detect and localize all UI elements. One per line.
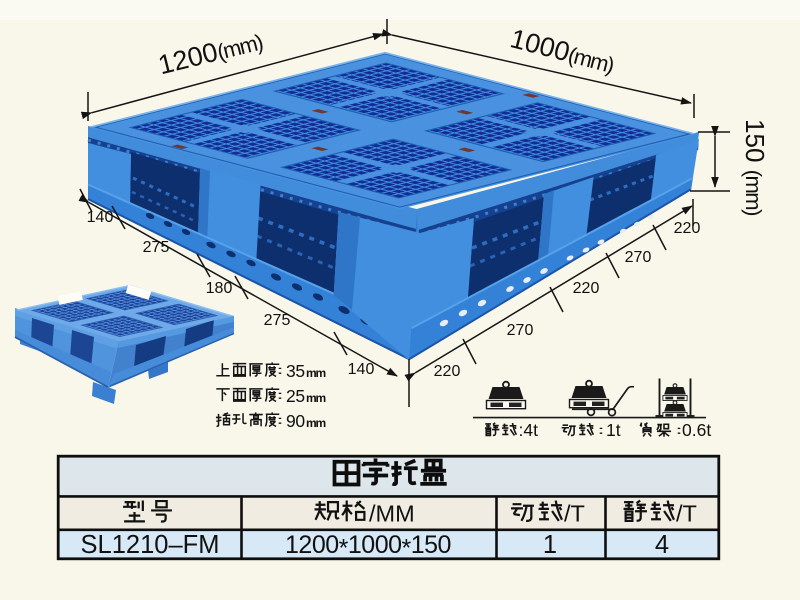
svg-text:/T: /T — [564, 501, 585, 527]
svg-text:140: 140 — [87, 209, 114, 226]
svg-text:220: 220 — [674, 220, 701, 237]
svg-text:1: 1 — [543, 531, 557, 559]
svg-text:4: 4 — [655, 531, 669, 559]
svg-text:1200*1000*150: 1200*1000*150 — [285, 531, 451, 563]
svg-text:150 (mm): 150 (mm) — [740, 119, 770, 215]
svg-text:0.6t: 0.6t — [682, 420, 711, 440]
svg-text:180: 180 — [206, 280, 233, 297]
svg-text:220: 220 — [434, 363, 461, 380]
svg-text:/T: /T — [676, 501, 697, 527]
svg-text:140: 140 — [348, 361, 375, 378]
svg-text:275: 275 — [143, 239, 170, 256]
svg-text:275: 275 — [264, 312, 291, 329]
svg-text:270: 270 — [625, 249, 652, 266]
svg-text:270: 270 — [507, 322, 534, 339]
svg-text:SL1210–FM: SL1210–FM — [81, 531, 220, 559]
svg-text:1t: 1t — [606, 420, 621, 440]
svg-text::4t: :4t — [519, 420, 539, 440]
svg-text:/MM: /MM — [369, 501, 415, 527]
svg-text:220: 220 — [573, 280, 600, 297]
